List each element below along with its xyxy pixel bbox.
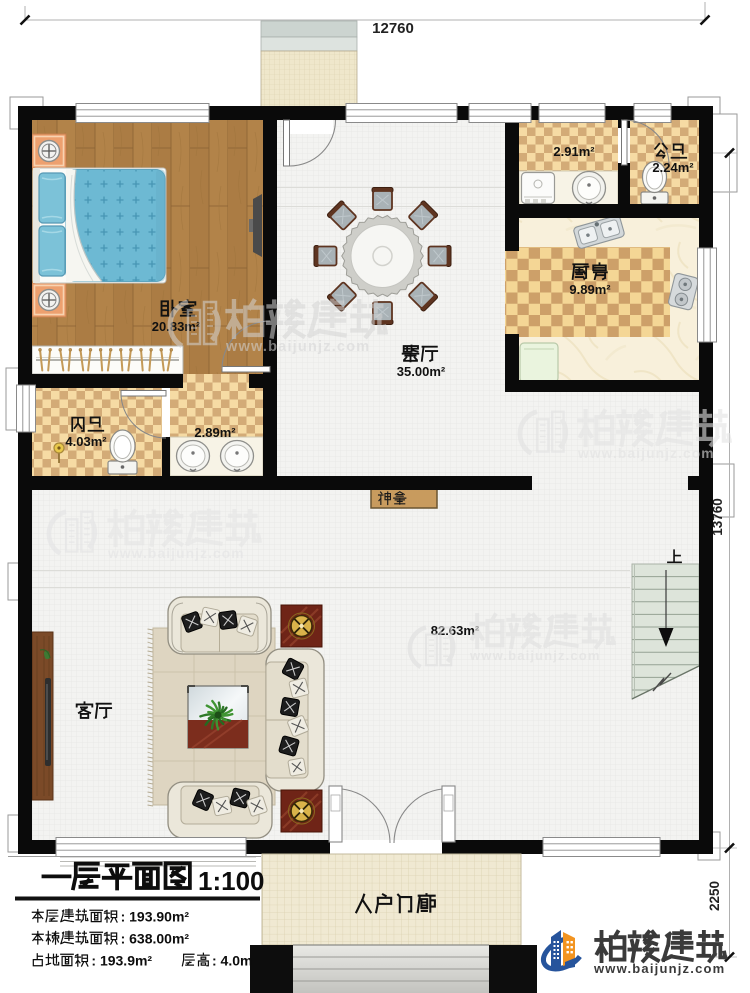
svg-text:12760: 12760 — [372, 20, 414, 37]
svg-text:2.24m²: 2.24m² — [652, 160, 694, 175]
svg-text:www.baijunjz.com: www.baijunjz.com — [469, 648, 601, 663]
svg-text:4.03m²: 4.03m² — [65, 434, 107, 449]
svg-text:35.00m²: 35.00m² — [397, 364, 446, 379]
svg-text:2.91m²: 2.91m² — [553, 144, 595, 159]
svg-text:2250: 2250 — [707, 881, 722, 911]
svg-text:1:100: 1:100 — [198, 866, 265, 896]
svg-text:9.89m²: 9.89m² — [569, 282, 611, 297]
svg-text:: 193.90m²: : 193.90m² — [121, 909, 190, 925]
svg-text:: 4.0m: : 4.0m — [212, 953, 252, 969]
svg-text:www.baijunjz.com: www.baijunjz.com — [593, 961, 725, 976]
svg-text:2.89m²: 2.89m² — [194, 425, 236, 440]
svg-text:www.baijunjz.com: www.baijunjz.com — [577, 446, 715, 461]
svg-text:www.baijunjz.com: www.baijunjz.com — [225, 339, 370, 355]
svg-text:: 638.00m²: : 638.00m² — [121, 931, 190, 947]
svg-text:: 193.9m²: : 193.9m² — [91, 953, 152, 969]
svg-text:www.baijunjz.com: www.baijunjz.com — [107, 546, 245, 561]
